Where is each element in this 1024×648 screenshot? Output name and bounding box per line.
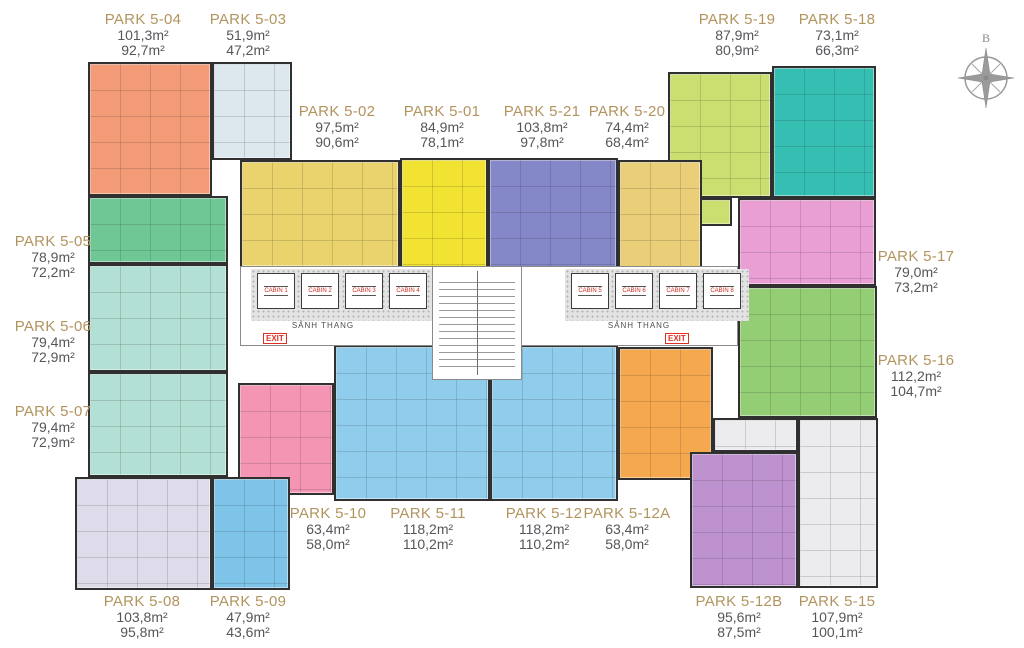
- unit-name: PARK 5-06: [0, 319, 118, 335]
- unit-label-park-5-12a: PARK 5-12A 63,4m² 58,0m²: [562, 506, 692, 552]
- unit-name: PARK 5-20: [562, 104, 692, 120]
- lift-cabin-label: CABIN 1: [264, 286, 287, 296]
- lift-cabin-1: CABIN 1: [257, 273, 295, 309]
- unit-area-net: 72,9m²: [0, 435, 118, 450]
- compass-north-letter: B: [982, 31, 990, 45]
- floor-plan: CABIN 1 CABIN 2 CABIN 3 CABIN 4 CABIN 5 …: [0, 0, 1024, 648]
- lift-cabin-label: CABIN 3: [352, 286, 375, 296]
- exit-sign-right: EXIT: [665, 333, 689, 344]
- lift-cabin-7: CABIN 7: [659, 273, 697, 309]
- lift-cabin-4: CABIN 4: [389, 273, 427, 309]
- unit-area-net: 72,9m²: [0, 350, 118, 365]
- unit-label-park-5-09: PARK 5-09 47,9m² 43,6m²: [183, 594, 313, 640]
- lift-cabin-6: CABIN 6: [615, 273, 653, 309]
- lift-cabin-2: CABIN 2: [301, 273, 339, 309]
- unit-area-net: 58,0m²: [562, 537, 692, 552]
- unit-name: PARK 5-12A: [562, 506, 692, 522]
- unit-block-park-5-04[interactable]: [88, 62, 212, 196]
- unit-area-gross: 73,1m²: [772, 28, 902, 43]
- unit-area-gross: 78,9m²: [0, 250, 118, 265]
- compass-icon: B: [950, 26, 1022, 114]
- unit-label-park-5-03: PARK 5-03 51,9m² 47,2m²: [183, 12, 313, 58]
- unit-block-park-5-12b[interactable]: [690, 452, 798, 588]
- lobby-label-left: SẢNH THANG: [278, 321, 368, 330]
- unit-area-gross: 118,2m²: [363, 522, 493, 537]
- unit-block-park-5-08[interactable]: [75, 477, 212, 590]
- unit-name: PARK 5-16: [851, 353, 981, 369]
- unit-label-park-5-07: PARK 5-07 79,4m² 72,9m²: [0, 404, 118, 450]
- unit-name: PARK 5-05: [0, 234, 118, 250]
- unit-block-park-5-15[interactable]: [798, 418, 878, 588]
- unit-area-gross: 79,4m²: [0, 335, 118, 350]
- unit-block-park-5-02[interactable]: [240, 160, 400, 268]
- unit-name: PARK 5-03: [183, 12, 313, 28]
- unit-area-net: 73,2m²: [851, 280, 981, 295]
- lift-cabin-8: CABIN 8: [703, 273, 741, 309]
- unit-area-net: 104,7m²: [851, 384, 981, 399]
- unit-area-gross: 63,4m²: [562, 522, 692, 537]
- unit-name: PARK 5-18: [772, 12, 902, 28]
- unit-label-park-5-11: PARK 5-11 118,2m² 110,2m²: [363, 506, 493, 552]
- unit-area-gross: 79,4m²: [0, 420, 118, 435]
- central-staircase: [432, 266, 522, 380]
- unit-area-gross: 51,9m²: [183, 28, 313, 43]
- unit-label-park-5-05: PARK 5-05 78,9m² 72,2m²: [0, 234, 118, 280]
- unit-name: PARK 5-17: [851, 249, 981, 265]
- unit-area-net: 72,2m²: [0, 265, 118, 280]
- lift-cabin-label: CABIN 8: [710, 286, 733, 296]
- unit-area-net: 43,6m²: [183, 625, 313, 640]
- unit-area-gross: 79,0m²: [851, 265, 981, 280]
- unit-label-park-5-06: PARK 5-06 79,4m² 72,9m²: [0, 319, 118, 365]
- lift-cabin-3: CABIN 3: [345, 273, 383, 309]
- lift-cabin-label: CABIN 2: [308, 286, 331, 296]
- unit-area-gross: 112,2m²: [851, 369, 981, 384]
- lift-cabin-label: CABIN 4: [396, 286, 419, 296]
- unit-label-park-5-17: PARK 5-17 79,0m² 73,2m²: [851, 249, 981, 295]
- unit-area-gross: 47,9m²: [183, 610, 313, 625]
- unit-name: PARK 5-15: [772, 594, 902, 610]
- unit-area-net: 100,1m²: [772, 625, 902, 640]
- unit-label-park-5-18: PARK 5-18 73,1m² 66,3m²: [772, 12, 902, 58]
- unit-area-net: 68,4m²: [562, 135, 692, 150]
- unit-area-net: 66,3m²: [772, 43, 902, 58]
- unit-label-park-5-15: PARK 5-15 107,9m² 100,1m²: [772, 594, 902, 640]
- lobby-label-right: SẢNH THANG: [594, 321, 684, 330]
- unit-area-gross: 107,9m²: [772, 610, 902, 625]
- unit-block-park-5-18[interactable]: [772, 66, 876, 198]
- unit-block-park-5-15[interactable]: [713, 418, 798, 452]
- unit-area-net: 110,2m²: [363, 537, 493, 552]
- unit-name: PARK 5-09: [183, 594, 313, 610]
- compass-rose: B: [950, 26, 1022, 119]
- exit-sign-left: EXIT: [263, 333, 287, 344]
- unit-name: PARK 5-11: [363, 506, 493, 522]
- unit-label-park-5-20: PARK 5-20 74,4m² 68,4m²: [562, 104, 692, 150]
- lift-cabin-label: CABIN 6: [622, 286, 645, 296]
- unit-area-net: 47,2m²: [183, 43, 313, 58]
- unit-name: PARK 5-07: [0, 404, 118, 420]
- lift-cabin-label: CABIN 5: [578, 286, 601, 296]
- lift-cabin-5: CABIN 5: [571, 273, 609, 309]
- unit-label-park-5-16: PARK 5-16 112,2m² 104,7m²: [851, 353, 981, 399]
- unit-area-gross: 74,4m²: [562, 120, 692, 135]
- lift-cabin-label: CABIN 7: [666, 286, 689, 296]
